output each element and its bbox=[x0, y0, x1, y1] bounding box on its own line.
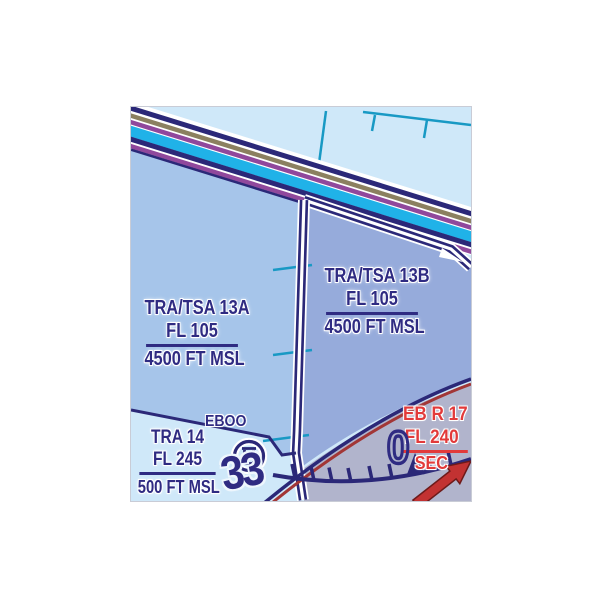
upper-limit: FL 105 bbox=[144, 321, 239, 344]
airspace-name: TRA/TSA 13B bbox=[324, 264, 419, 289]
airfield-code-eboo: EBOO bbox=[205, 413, 246, 431]
compass-numeral-0: 0 bbox=[387, 425, 410, 470]
restricted-name: EB R 17 bbox=[403, 403, 472, 427]
airspace-label-tra-tsa-13a: TRA/TSA 13A FL 105 4500 FT MSL bbox=[144, 296, 239, 370]
lower-limit: 500 FT MSL bbox=[138, 475, 218, 498]
page: TRA/TSA 13A FL 105 4500 FT MSL TRA/TSA 1… bbox=[0, 0, 600, 600]
compass-numeral-33: 33 bbox=[217, 444, 265, 497]
restricted-area-label: EB R 17 FL 240 SEC bbox=[403, 403, 472, 473]
airspace-label-tra-tsa-13b: TRA/TSA 13B FL 105 4500 FT MSL bbox=[324, 264, 419, 338]
upper-limit: FL 245 bbox=[138, 449, 218, 472]
lower-limit: 4500 FT MSL bbox=[324, 315, 419, 338]
upper-limit: FL 105 bbox=[324, 289, 419, 312]
lower-limit: 4500 FT MSL bbox=[144, 347, 239, 370]
restricted-upper-limit: FL 240 bbox=[405, 427, 472, 449]
restricted-note: SEC bbox=[415, 453, 472, 473]
airspace-name: TRA/TSA 13A bbox=[144, 296, 239, 321]
airspace-label-tra-14: TRA 14 FL 245 500 FT MSL bbox=[138, 426, 218, 498]
vfr-chart-canvas[interactable]: TRA/TSA 13A FL 105 4500 FT MSL TRA/TSA 1… bbox=[130, 106, 472, 502]
